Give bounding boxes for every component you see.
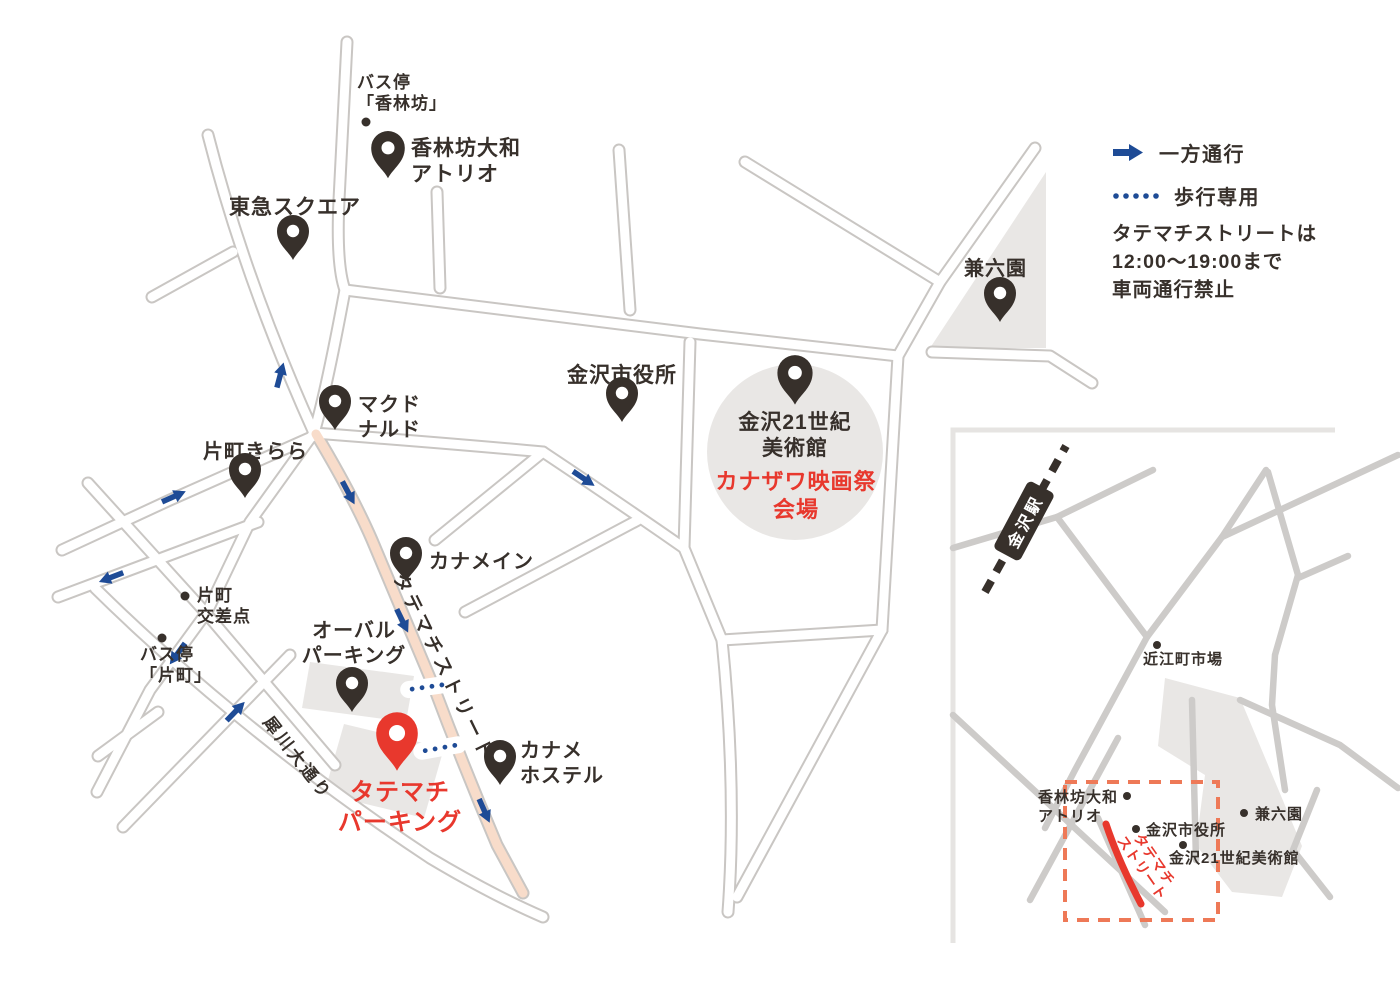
dot-bus-stop-katamachi bbox=[158, 634, 167, 643]
place-label-museum-21c: 金沢21世紀美術館 bbox=[738, 410, 851, 463]
place-label-korinbo-daiwa-atrio-inset: 香林坊大和アトリオ bbox=[1038, 789, 1118, 827]
dot-katamachi-crossing bbox=[181, 592, 190, 601]
place-label-museum-21c-inset: 金沢21世紀美術館 bbox=[1169, 850, 1300, 869]
place-label-city-hall-inset: 金沢市役所 bbox=[1146, 822, 1226, 841]
legend-pedestrian-label: 歩行専用 bbox=[1174, 181, 1260, 210]
pedestrian-dots-icon bbox=[1112, 191, 1160, 201]
place-label-mcdonalds: マクドナルド bbox=[358, 393, 421, 443]
place-label-omicho-market: 近江町市場 bbox=[1143, 651, 1223, 670]
legend: 一方通行 歩行専用 bbox=[1112, 138, 1260, 224]
dot-bus-stop-korinbo bbox=[362, 118, 371, 127]
place-label-kaname-inn: カナメイン bbox=[429, 550, 534, 575]
dot-omicho-market bbox=[1153, 641, 1161, 649]
place-label-tokyu-square: 東急スクエア bbox=[229, 195, 361, 221]
place-label-kenrokuen: 兼六園 bbox=[964, 257, 1027, 282]
place-label-katamachi-crossing: 片町交差点 bbox=[197, 585, 251, 628]
pin-mcdonalds bbox=[319, 385, 351, 430]
one-way-arrow-icon bbox=[1112, 144, 1145, 161]
dot-kenrokuen-inset bbox=[1240, 809, 1248, 817]
place-label-city-hall: 金沢市役所 bbox=[567, 363, 677, 389]
place-label-film-festival-venue: カナザワ映画祭会場 bbox=[715, 468, 876, 523]
pin-tokyu-square bbox=[277, 215, 309, 260]
street-closure-note: タテマチストリートは 12:00〜19:00まで 車両通行禁止 bbox=[1112, 220, 1317, 304]
access-map: 一方通行 歩行専用 タテマチストリートは 12:00〜19:00まで 車両通行禁… bbox=[0, 0, 1400, 1000]
place-label-katamachi-kirara: 片町きらら bbox=[203, 440, 308, 465]
place-label-korinbo-daiwa-atrio: 香林坊大和アトリオ bbox=[411, 136, 521, 189]
pin-korinbo-daiwa-atrio bbox=[371, 131, 405, 178]
note-line-2: 12:00〜19:00まで bbox=[1112, 248, 1317, 276]
dot-museum-21c-inset bbox=[1179, 841, 1187, 849]
legend-one-way: 一方通行 bbox=[1112, 138, 1260, 167]
place-label-kaname-hostel: カナメホステル bbox=[520, 739, 604, 789]
legend-one-way-label: 一方通行 bbox=[1159, 138, 1245, 167]
place-label-tatemachi-parking: タテマチパーキング bbox=[338, 778, 462, 838]
place-label-bus-stop-korinbo: バス停「香林坊」 bbox=[357, 72, 447, 115]
note-line-3: 車両通行禁止 bbox=[1112, 276, 1317, 304]
note-line-1: タテマチストリートは bbox=[1112, 220, 1317, 248]
place-label-kenrokuen-inset: 兼六園 bbox=[1255, 806, 1303, 825]
legend-pedestrian: 歩行専用 bbox=[1112, 181, 1260, 210]
place-label-oval-parking: オーバルパーキング bbox=[302, 619, 406, 669]
dot-korinbo-daiwa-atrio-inset bbox=[1123, 792, 1131, 800]
place-label-bus-stop-katamachi: バス停「片町」 bbox=[140, 644, 212, 687]
